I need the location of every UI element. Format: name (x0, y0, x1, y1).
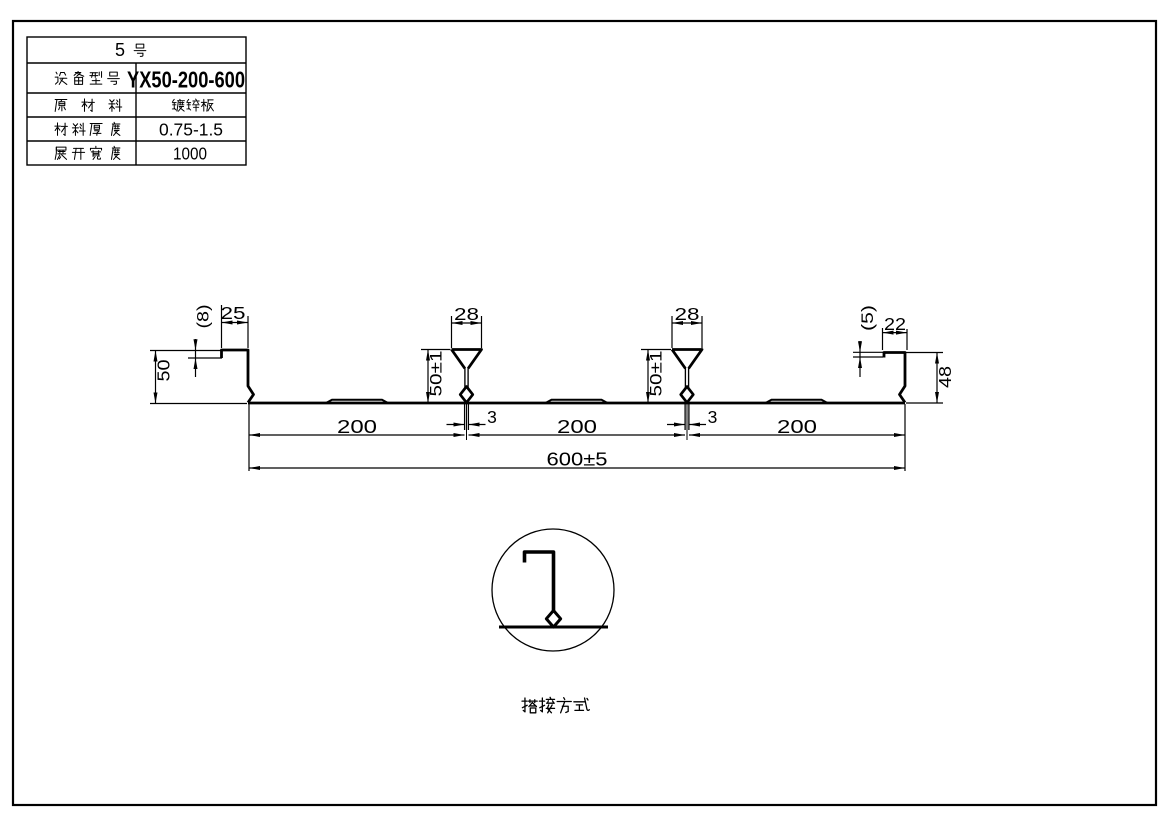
svg-text:50±1: 50±1 (648, 351, 666, 397)
svg-text:0.75-1.5: 0.75-1.5 (159, 120, 223, 140)
svg-text:28: 28 (675, 304, 700, 324)
svg-text:(5): (5) (858, 305, 877, 331)
svg-text:200: 200 (337, 416, 377, 437)
svg-text:(8): (8) (194, 305, 213, 329)
svg-text:25: 25 (221, 303, 246, 323)
svg-text:50: 50 (154, 359, 174, 381)
svg-text:5: 5 (115, 40, 125, 60)
svg-text:200: 200 (557, 416, 597, 437)
svg-text:200: 200 (777, 416, 817, 437)
svg-text:22: 22 (884, 314, 906, 334)
svg-text:3: 3 (708, 407, 718, 427)
svg-text:1000: 1000 (173, 144, 207, 164)
svg-text:600±5: 600±5 (547, 449, 608, 470)
svg-text:28: 28 (454, 304, 479, 324)
svg-text:YX50-200-600: YX50-200-600 (127, 67, 245, 93)
svg-text:3: 3 (487, 407, 497, 427)
svg-text:48: 48 (935, 366, 955, 388)
svg-text:50±1: 50±1 (428, 351, 446, 397)
